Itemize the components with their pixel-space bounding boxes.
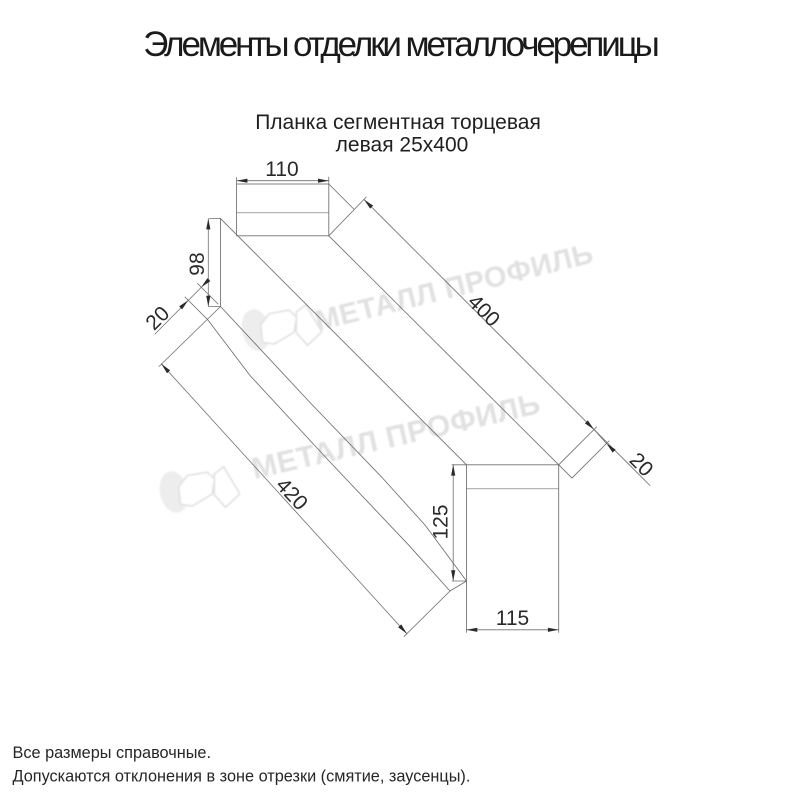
svg-text:Допускаются отклонения в зоне: Допускаются отклонения в зоне отрезки (с… [13, 768, 471, 786]
svg-text:Элементы отделки металлочерепи: Элементы отделки металлочерепицы [143, 25, 657, 64]
svg-text:левая 25х400: левая 25х400 [336, 134, 469, 157]
svg-text:98: 98 [186, 252, 209, 275]
svg-text:Планка сегментная торцевая: Планка сегментная торцевая [255, 111, 541, 134]
svg-text:Все размеры справочные.: Все размеры справочные. [13, 744, 211, 762]
svg-text:115: 115 [496, 607, 529, 630]
svg-text:125: 125 [430, 504, 453, 539]
svg-text:110: 110 [265, 158, 298, 181]
